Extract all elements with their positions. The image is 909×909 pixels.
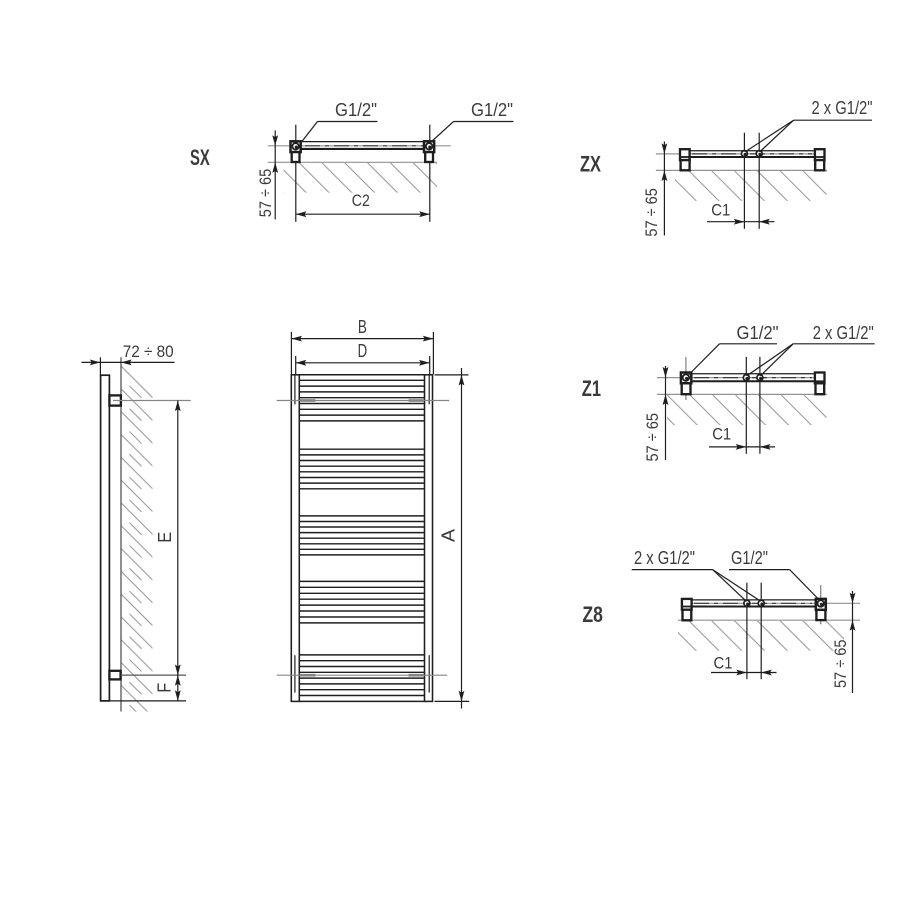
svg-text:G1/2": G1/2" (731, 548, 768, 568)
svg-text:C2: C2 (352, 192, 370, 210)
svg-text:E: E (155, 532, 175, 543)
svg-text:2 x G1/2": 2 x G1/2" (634, 548, 695, 568)
svg-text:C1: C1 (712, 426, 731, 444)
svg-text:G1/2": G1/2" (471, 100, 513, 120)
svg-text:57 ÷ 65: 57 ÷ 65 (644, 413, 662, 462)
svg-text:G1/2": G1/2" (737, 323, 779, 343)
svg-text:C1: C1 (711, 202, 730, 220)
svg-text:2 x G1/2": 2 x G1/2" (813, 323, 874, 343)
svg-text:C1: C1 (714, 655, 733, 673)
svg-text:F: F (155, 683, 175, 693)
svg-text:SX: SX (190, 145, 210, 170)
svg-text:B: B (358, 317, 367, 337)
svg-text:2 x G1/2": 2 x G1/2" (812, 98, 873, 118)
svg-text:57 ÷ 65: 57 ÷ 65 (832, 640, 850, 689)
svg-text:Z8: Z8 (582, 602, 603, 627)
svg-text:72 ÷ 80: 72 ÷ 80 (123, 343, 174, 361)
svg-text:57 ÷ 65: 57 ÷ 65 (257, 169, 275, 218)
svg-text:ZX: ZX (580, 152, 601, 177)
svg-text:G1/2": G1/2" (335, 100, 377, 120)
svg-text:Z1: Z1 (582, 376, 601, 401)
svg-text:57 ÷ 65: 57 ÷ 65 (643, 188, 661, 237)
svg-text:A: A (439, 529, 459, 542)
svg-text:D: D (358, 341, 368, 361)
